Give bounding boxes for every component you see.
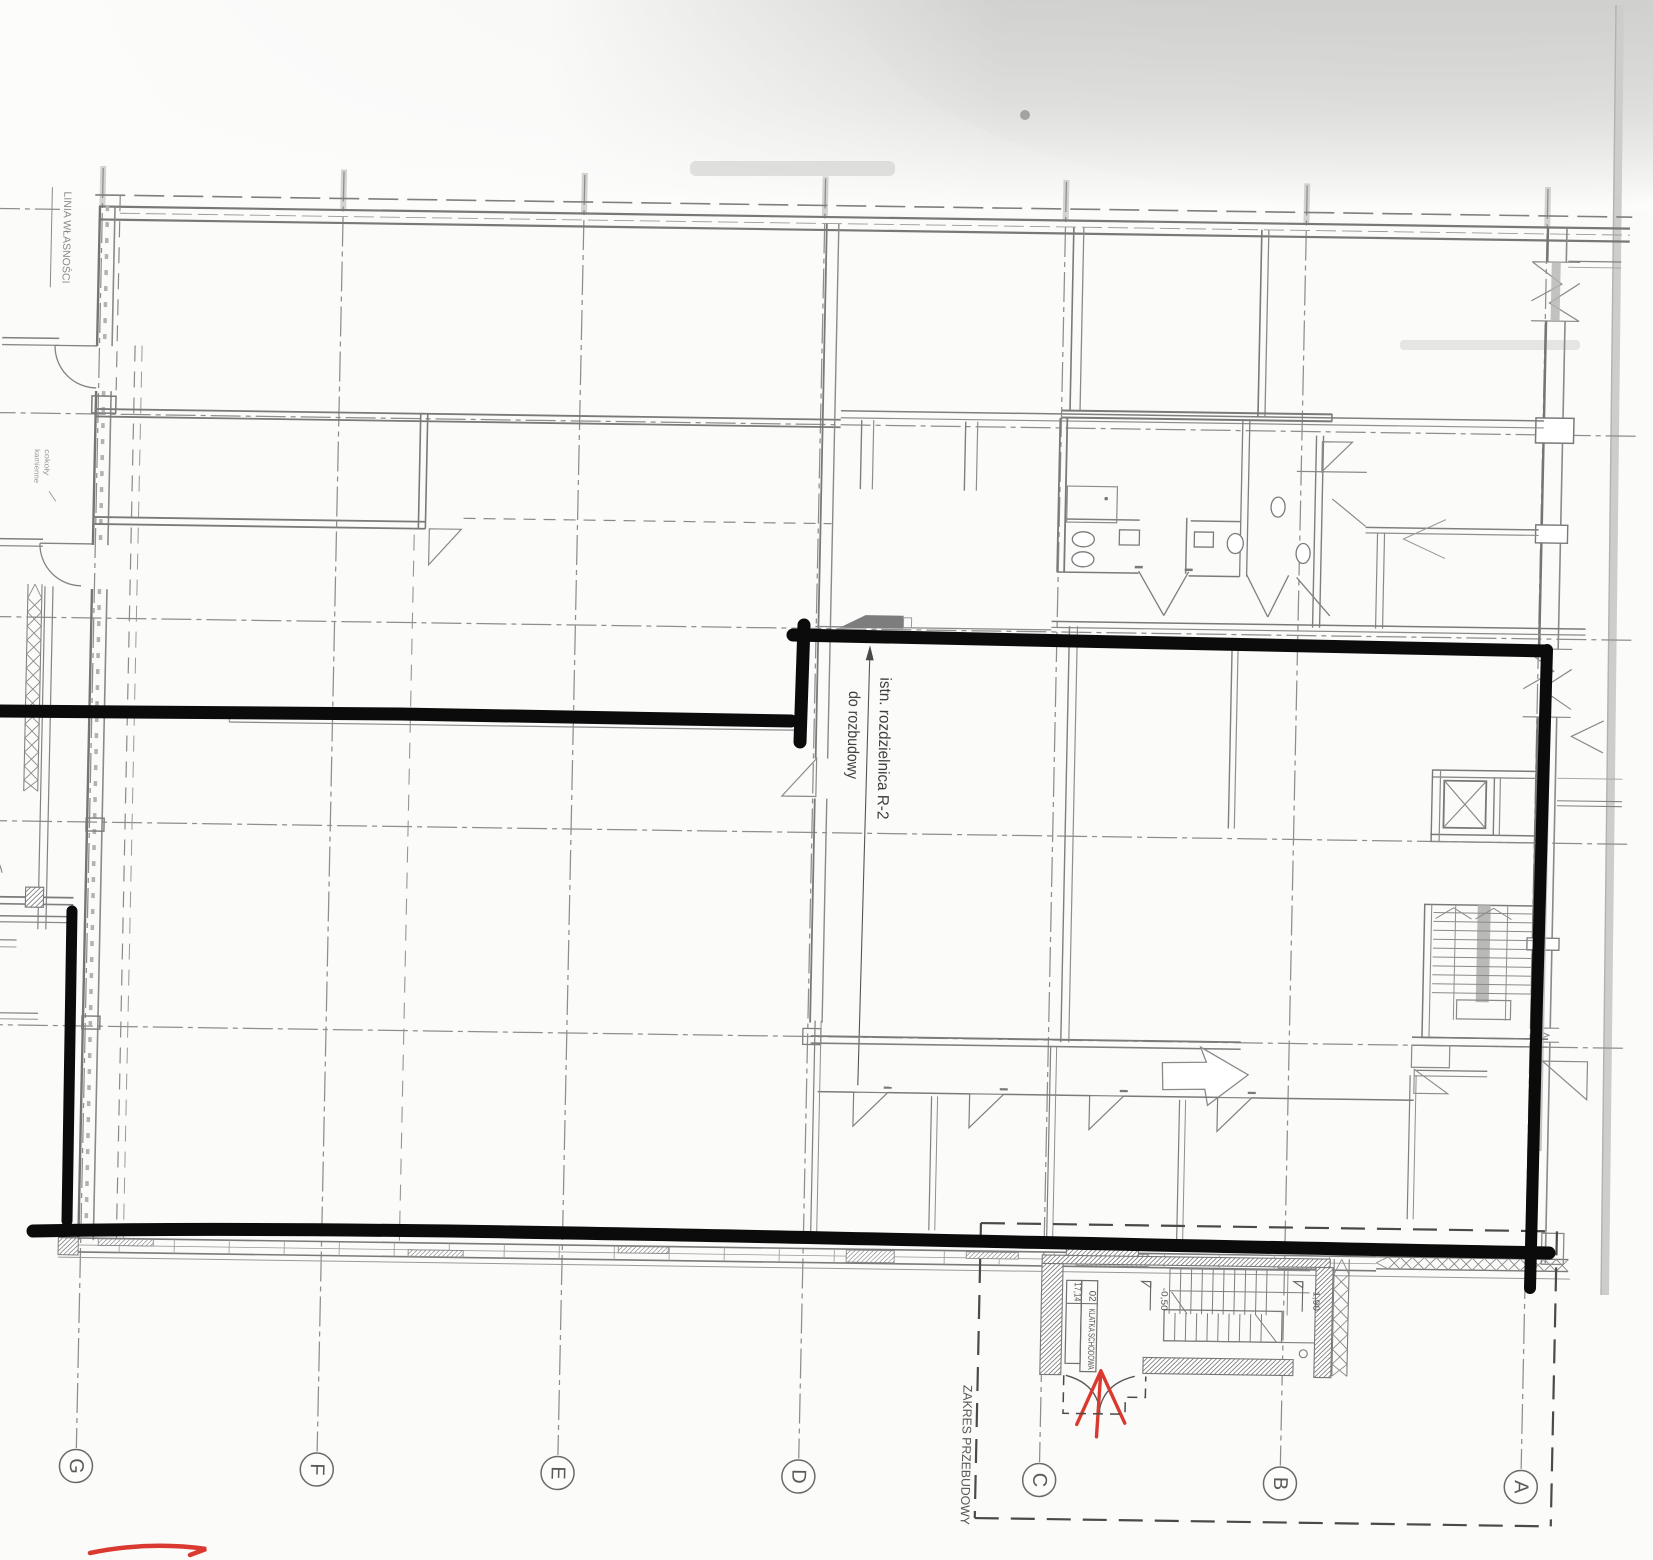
- svg-text:LINIA WŁASNOŚCI: LINIA WŁASNOŚCI: [59, 191, 74, 283]
- svg-text:C: C: [1028, 1473, 1050, 1488]
- svg-text:ZAKRES PRZEBUDOWY: ZAKRES PRZEBUDOWY: [958, 1385, 975, 1526]
- svg-text:D: D: [787, 1469, 809, 1484]
- svg-text:-0,50: -0,50: [1159, 1288, 1169, 1311]
- svg-text:istn. rozdzielnica R-2: istn. rozdzielnica R-2: [873, 677, 893, 819]
- svg-text:17,14: 17,14: [1071, 1282, 1082, 1301]
- svg-text:E: E: [546, 1466, 568, 1480]
- svg-text:do rozbudowy: do rozbudowy: [843, 691, 862, 779]
- svg-text:KLATKA SCHODOWA: KLATKA SCHODOWA: [1086, 1309, 1097, 1370]
- svg-text:A: A: [1510, 1480, 1532, 1494]
- svg-text:02: 02: [1086, 1291, 1097, 1302]
- svg-text:F: F: [306, 1463, 328, 1476]
- svg-text:G: G: [65, 1458, 87, 1474]
- svg-text:B: B: [1269, 1477, 1291, 1491]
- svg-text:cokoły: cokoły: [42, 449, 52, 475]
- svg-text:-1,90: -1,90: [1311, 1288, 1321, 1311]
- svg-text:kamienne: kamienne: [32, 449, 42, 483]
